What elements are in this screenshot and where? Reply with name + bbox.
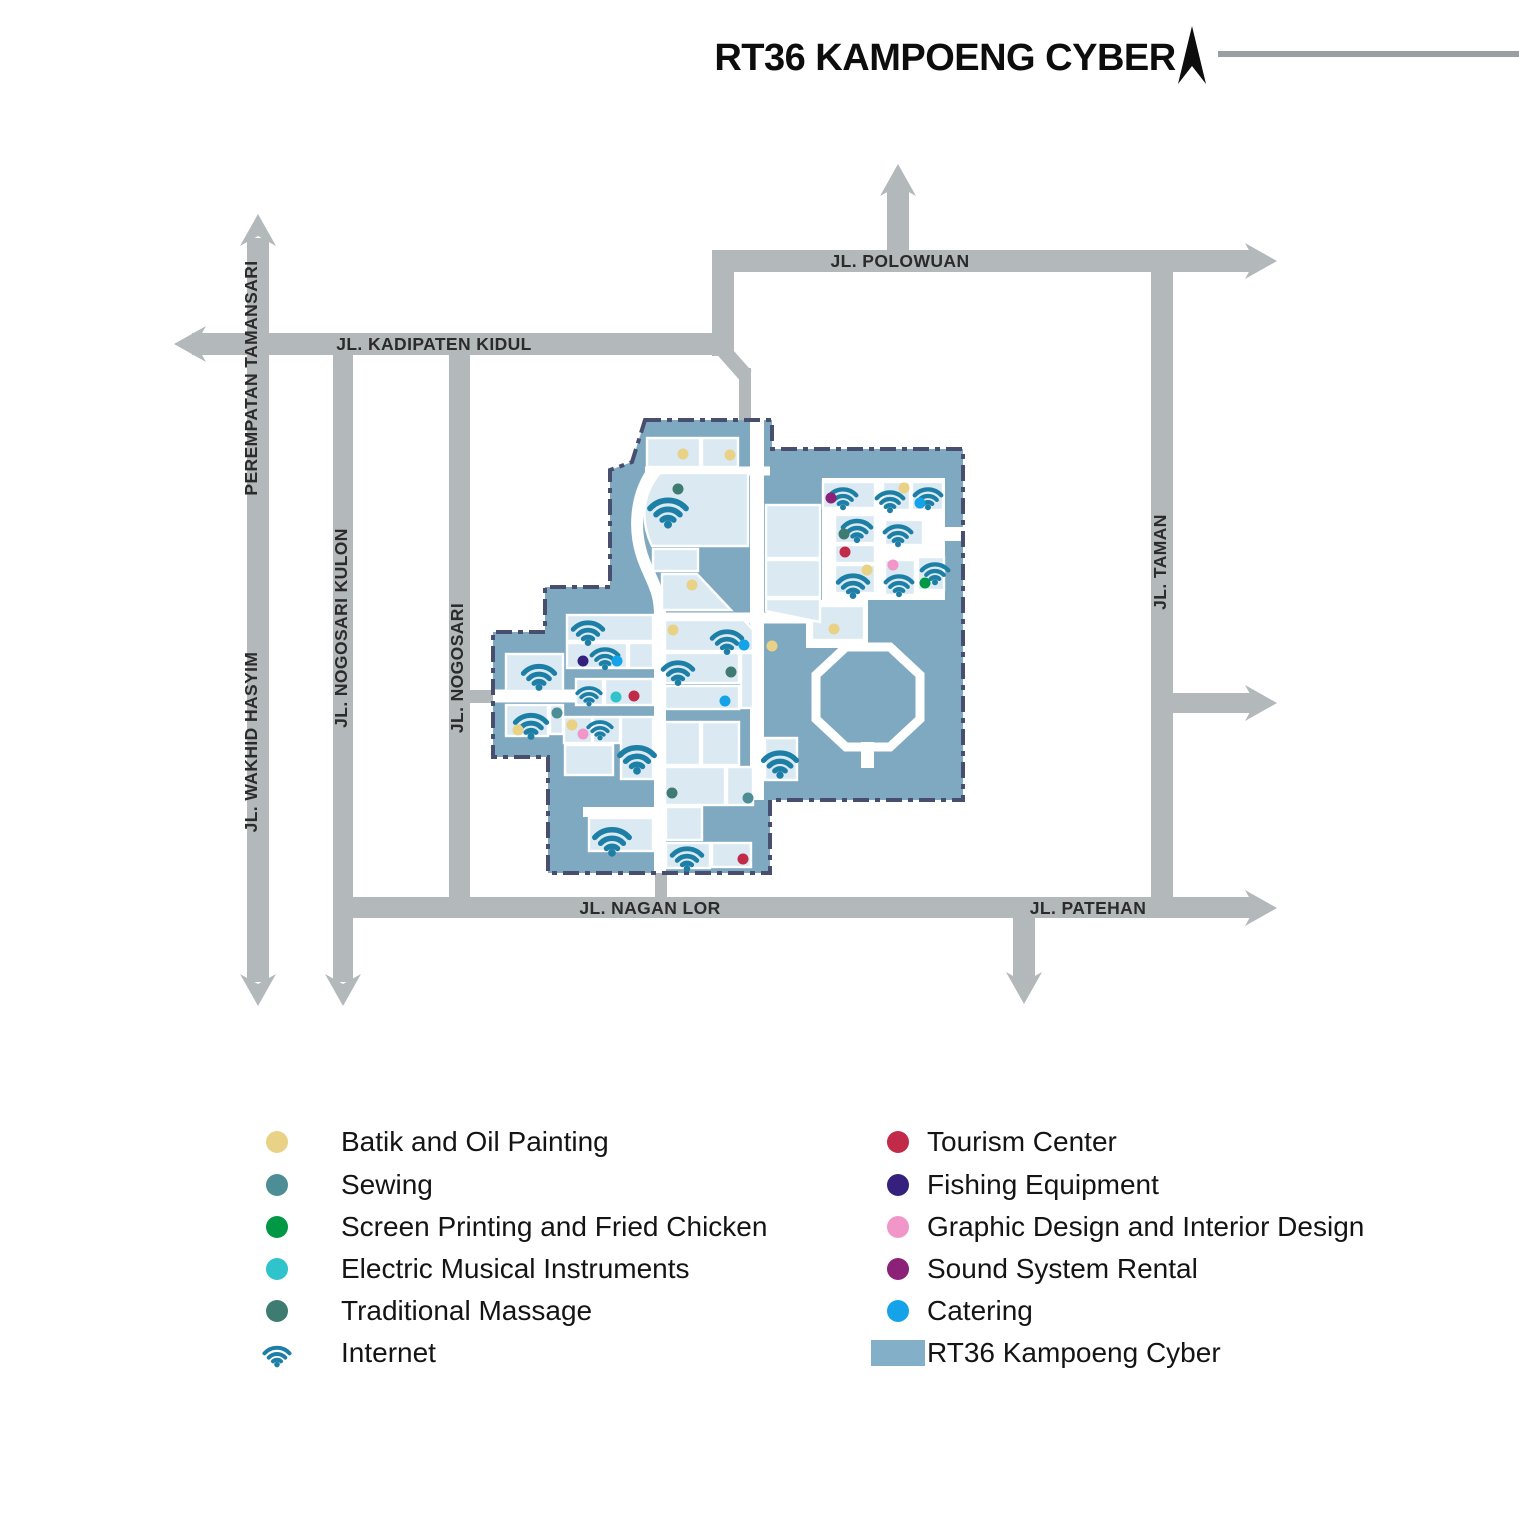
header: RT36 KAMPOENG CYBER: [714, 26, 1519, 84]
legend-dot-batik-icon: [266, 1131, 288, 1153]
courtyard-area: [938, 527, 965, 541]
legend-item-tourism: Tourism Center: [887, 1126, 1117, 1157]
poi-dot-sound: [826, 493, 837, 504]
poi-dot-batik: [668, 625, 679, 636]
building: [564, 717, 592, 743]
legend-item-catering: Catering: [887, 1295, 1033, 1326]
legend-area-swatch-icon: [871, 1340, 925, 1366]
legend-dot-catering-icon: [887, 1300, 909, 1322]
building: [605, 679, 653, 705]
legend-label: Traditional Massage: [341, 1295, 592, 1326]
poi-dot-sewing: [743, 793, 754, 804]
legend-item-screen: Screen Printing and Fried Chicken: [266, 1211, 767, 1242]
title-rule-line: [1218, 51, 1519, 57]
building: [741, 653, 753, 708]
legend-label: RT36 Kampoeng Cyber: [927, 1337, 1221, 1368]
legend-dot-screen-icon: [266, 1216, 288, 1238]
poi-dot-electric: [611, 692, 622, 703]
legend-item-batik: Batik and Oil Painting: [266, 1126, 609, 1157]
building: [629, 643, 653, 668]
legend-label: Tourism Center: [927, 1126, 1117, 1157]
road-label: JL. KADIPATEN KIDUL: [336, 334, 532, 354]
north-compass-arrow-icon: [1178, 26, 1206, 84]
legend-label: Screen Printing and Fried Chicken: [341, 1211, 767, 1242]
legend-item-electric: Electric Musical Instruments: [266, 1253, 690, 1284]
poi-dot-batik: [899, 483, 910, 494]
road-label: JL. POLOWUAN: [831, 251, 970, 271]
poi-dot-fishing: [578, 656, 589, 667]
building: [766, 505, 820, 558]
poi-dot-batik: [862, 565, 873, 576]
road-label: JL. WAKHID HASYIM: [241, 652, 261, 833]
kampoeng-cyber-map: RT36 KAMPOENG CYBER JL. KADIPATEN KIDULJ…: [0, 0, 1519, 1535]
building: [766, 560, 820, 597]
poi-dot-batik: [678, 449, 689, 460]
legend-dot-tourism-icon: [887, 1131, 909, 1153]
road-label: JL. PATEHAN: [1030, 898, 1147, 918]
poi-dot-batik: [513, 725, 524, 736]
poi-dot-graphic: [578, 729, 589, 740]
legend-dot-graphic-icon: [887, 1216, 909, 1238]
poi-dot-massage: [839, 529, 850, 540]
building: [666, 807, 702, 840]
poi-dot-batik: [829, 624, 840, 635]
legend-item-kampoeng_swatch: RT36 Kampoeng Cyber: [871, 1337, 1221, 1368]
poi-dot-tourism: [840, 547, 851, 558]
legend-label: Internet: [341, 1337, 436, 1368]
map-page: RT36 KAMPOENG CYBER JL. KADIPATEN KIDULJ…: [0, 0, 1519, 1535]
building: [565, 745, 613, 775]
road-segment: [712, 250, 1257, 272]
legend-wifi-icon: [264, 1348, 289, 1368]
road-connector: [723, 350, 746, 376]
poi-dot-tourism: [629, 691, 640, 702]
road-segment: [712, 250, 734, 356]
poi-dot-massage: [667, 788, 678, 799]
legend-item-graphic: Graphic Design and Interior Design: [887, 1211, 1364, 1242]
legend-label: Catering: [927, 1295, 1033, 1326]
legend-item-fishing: Fishing Equipment: [887, 1169, 1159, 1200]
poi-dot-graphic: [888, 560, 899, 571]
road-label: JL. NAGAN LOR: [579, 898, 720, 918]
poi-dot-sewing: [552, 708, 563, 719]
kampoeng-area: [493, 420, 965, 873]
legend-label: Sound System Rental: [927, 1253, 1198, 1284]
building: [647, 438, 700, 467]
legend-label: Batik and Oil Painting: [341, 1126, 609, 1157]
poi-dot-tourism: [738, 854, 749, 865]
poi-dot-massage: [726, 667, 737, 678]
page-title: RT36 KAMPOENG CYBER: [714, 37, 1175, 79]
legend-dot-electric-icon: [266, 1258, 288, 1280]
legend-item-massage: Traditional Massage: [266, 1295, 592, 1326]
poi-dot-batik: [567, 720, 578, 731]
building: [567, 615, 653, 641]
legend: Batik and Oil PaintingSewingScreen Print…: [264, 1126, 1364, 1368]
legend-dot-fishing-icon: [887, 1174, 909, 1196]
poi-dot-screen: [920, 578, 931, 589]
poi-dot-batik: [725, 450, 736, 461]
legend-item-sewing: Sewing: [266, 1169, 433, 1200]
building: [665, 767, 725, 805]
building: [653, 549, 698, 571]
poi-dot-catering: [739, 640, 750, 651]
road-label: JL. NOGOSARI KULON: [331, 528, 351, 728]
road-label: PEREMPATAN TAMANSARI: [241, 260, 261, 495]
road-segment: [655, 873, 667, 899]
legend-label: Graphic Design and Interior Design: [927, 1211, 1364, 1242]
road-segment: [1162, 693, 1257, 713]
building: [665, 722, 700, 765]
legend-dot-sewing-icon: [266, 1174, 288, 1196]
poi-dot-catering: [915, 498, 926, 509]
road-segment: [1013, 918, 1035, 982]
road-label: JL. TAMAN: [1150, 514, 1170, 610]
legend-dot-sound-icon: [887, 1258, 909, 1280]
legend-label: Sewing: [341, 1169, 433, 1200]
building: [702, 722, 739, 765]
poi-dot-catering: [720, 696, 731, 707]
poi-dot-catering: [612, 656, 623, 667]
legend-item-wifi: Internet: [264, 1337, 436, 1368]
poi-dot-batik: [687, 580, 698, 591]
legend-dot-massage-icon: [266, 1300, 288, 1322]
legend-label: Electric Musical Instruments: [341, 1253, 690, 1284]
road-label: JL. NOGOSARI: [447, 603, 467, 733]
poi-dot-massage: [673, 484, 684, 495]
legend-label: Fishing Equipment: [927, 1169, 1159, 1200]
legend-item-sound: Sound System Rental: [887, 1253, 1198, 1284]
poi-dot-batik: [767, 641, 778, 652]
